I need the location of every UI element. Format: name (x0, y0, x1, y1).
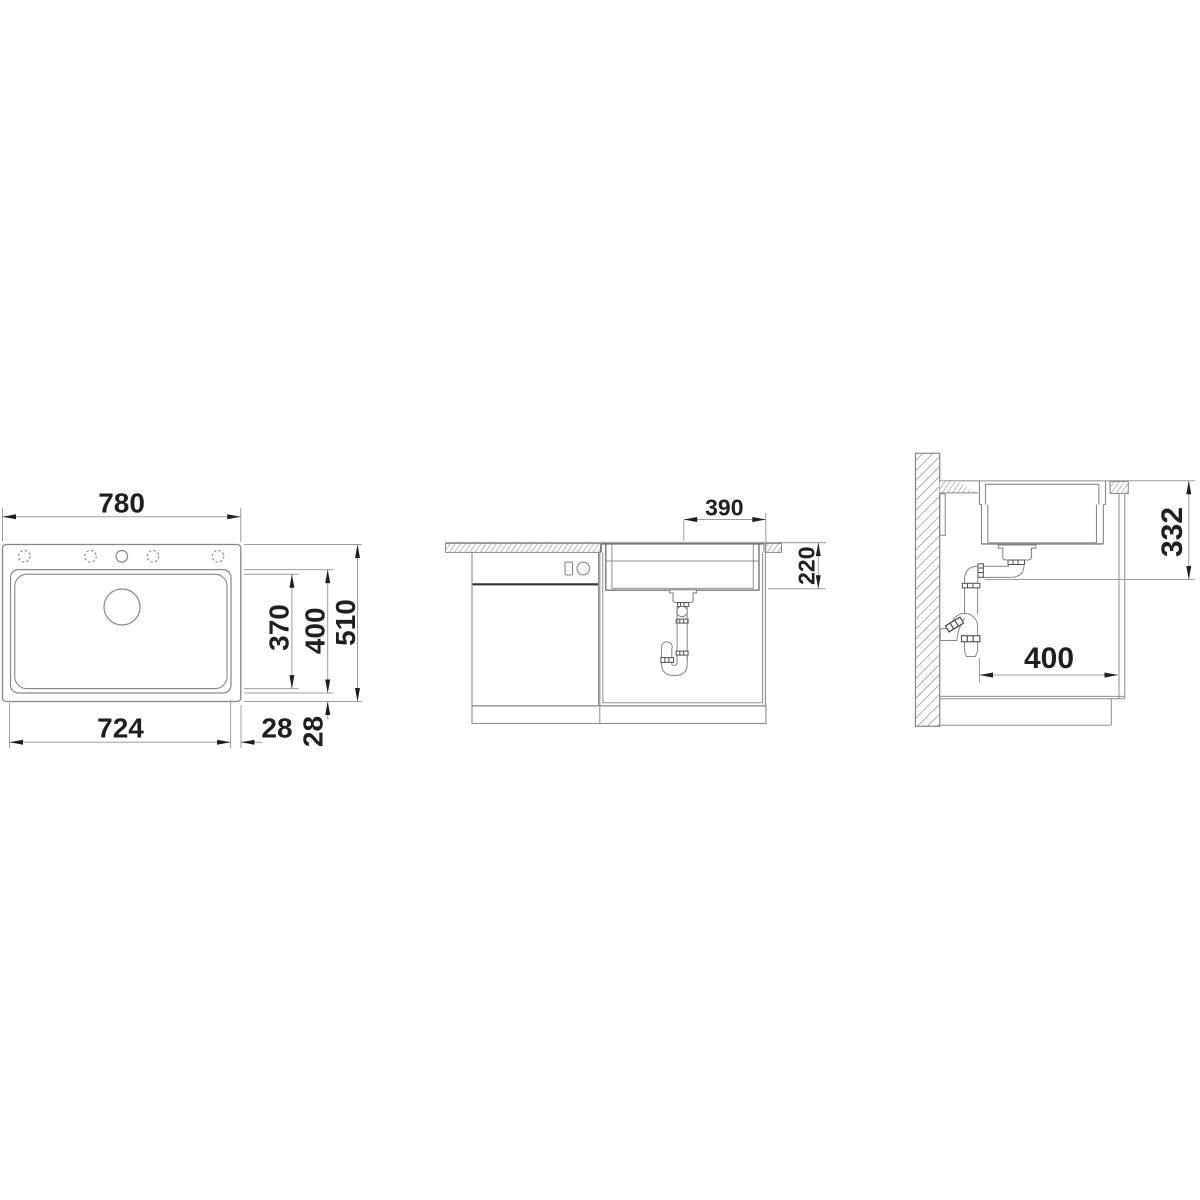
svg-text:510: 510 (330, 599, 361, 646)
svg-text:28: 28 (261, 713, 292, 744)
svg-text:780: 780 (98, 488, 145, 519)
svg-text:724: 724 (97, 713, 144, 744)
svg-text:220: 220 (794, 547, 820, 585)
svg-text:370: 370 (264, 604, 295, 651)
svg-text:400: 400 (300, 607, 331, 654)
svg-text:28: 28 (298, 716, 329, 747)
svg-text:400: 400 (1024, 642, 1074, 675)
svg-text:390: 390 (705, 495, 743, 521)
svg-text:332: 332 (1156, 507, 1189, 557)
